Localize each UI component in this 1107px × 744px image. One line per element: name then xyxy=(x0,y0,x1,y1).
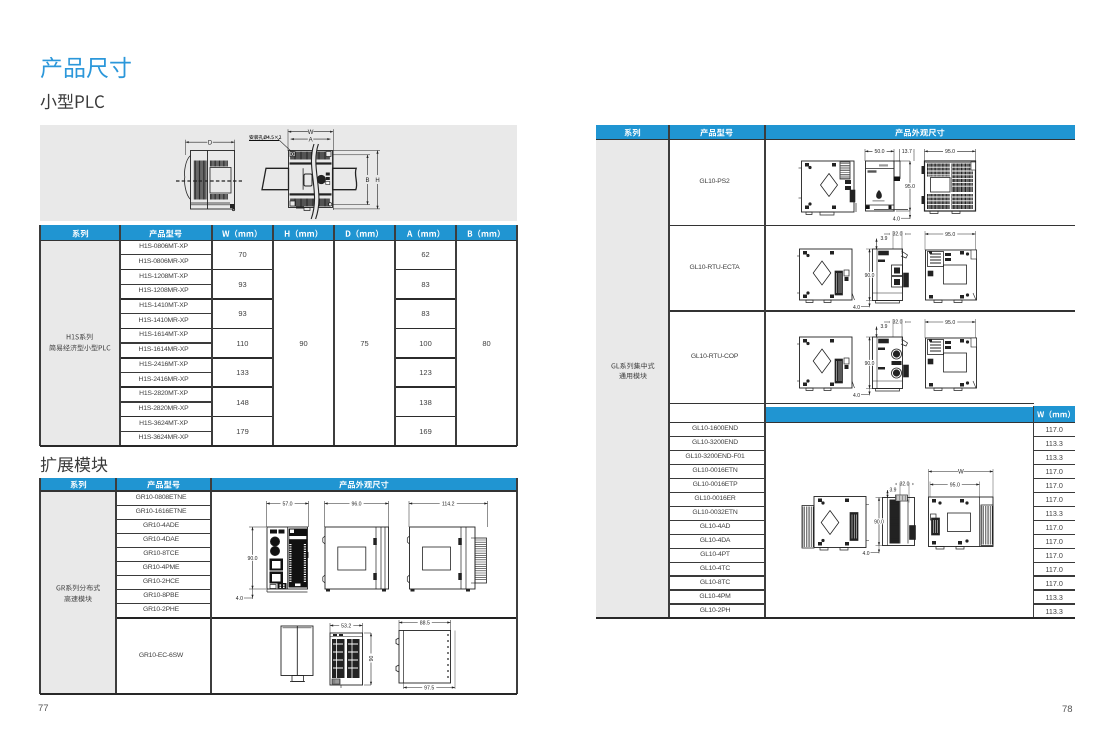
svg-text:13.7: 13.7 xyxy=(902,149,912,155)
svg-text:50.0: 50.0 xyxy=(874,149,884,155)
svg-text:114.2: 114.2 xyxy=(442,501,455,507)
svg-text:4.0: 4.0 xyxy=(863,551,870,557)
svg-text:95.0: 95.0 xyxy=(950,482,960,488)
svg-text:32.0: 32.0 xyxy=(893,232,903,238)
svg-text:53.2: 53.2 xyxy=(341,623,351,629)
svg-text:3.9: 3.9 xyxy=(881,236,888,242)
svg-text:95.0: 95.0 xyxy=(945,232,955,238)
svg-text:W: W xyxy=(308,130,314,136)
svg-text:95.0: 95.0 xyxy=(945,320,955,326)
svg-text:A: A xyxy=(309,137,313,143)
svg-text:90.0: 90.0 xyxy=(865,273,875,279)
svg-text:4.0: 4.0 xyxy=(853,393,860,399)
svg-text:32.0: 32.0 xyxy=(900,482,910,488)
svg-text:B: B xyxy=(365,178,369,184)
svg-text:90.0: 90.0 xyxy=(247,556,257,562)
svg-text:H: H xyxy=(375,178,379,184)
svg-text:3.9: 3.9 xyxy=(881,324,888,330)
svg-text:57.0: 57.0 xyxy=(282,501,292,507)
svg-text:4.0: 4.0 xyxy=(853,305,860,311)
svg-text:32.0: 32.0 xyxy=(893,320,903,326)
svg-text:W: W xyxy=(958,470,964,476)
svg-text:3.9: 3.9 xyxy=(890,487,897,493)
svg-text:4.0: 4.0 xyxy=(236,596,243,602)
svg-text:90: 90 xyxy=(369,656,375,662)
svg-text:96.0: 96.0 xyxy=(351,501,361,507)
svg-text:90.0: 90.0 xyxy=(874,519,884,525)
svg-text:4.0: 4.0 xyxy=(893,216,900,222)
svg-text:95.0: 95.0 xyxy=(905,184,915,190)
svg-text:90.0: 90.0 xyxy=(865,361,875,367)
svg-text:97.5: 97.5 xyxy=(424,685,434,691)
svg-text:95.0: 95.0 xyxy=(945,149,955,155)
svg-text:D: D xyxy=(208,140,213,146)
svg-text:88.5: 88.5 xyxy=(420,620,430,626)
